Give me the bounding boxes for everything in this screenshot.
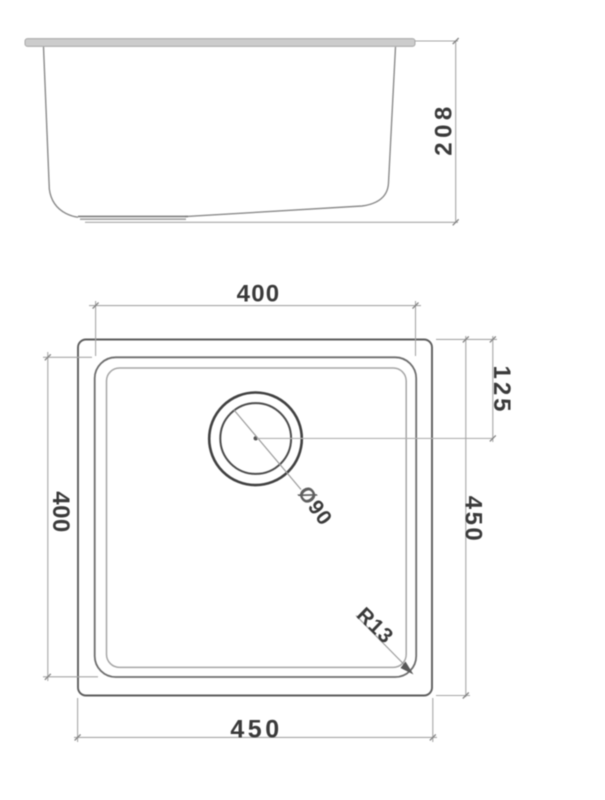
svg-text:R13: R13 [352, 603, 398, 648]
svg-text:400: 400 [47, 491, 74, 533]
svg-text:450: 450 [230, 716, 282, 744]
svg-text:208: 208 [431, 102, 458, 156]
svg-text:450: 450 [460, 496, 487, 544]
svg-text:125: 125 [488, 365, 515, 414]
svg-text:Ø90: Ø90 [293, 482, 337, 530]
svg-text:400: 400 [237, 281, 281, 308]
